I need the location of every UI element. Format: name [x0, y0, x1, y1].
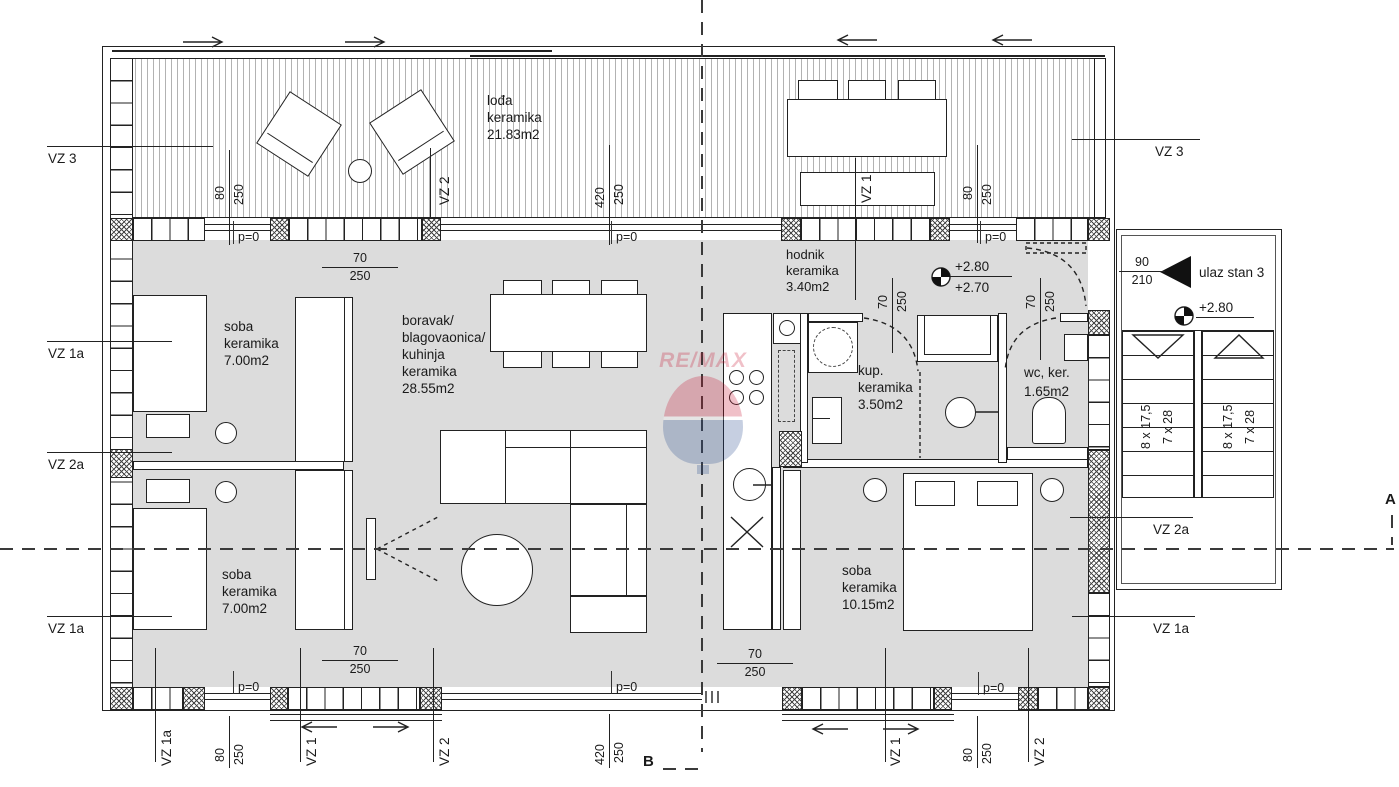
leader-line	[1070, 517, 1193, 518]
level-value-upper: +2.80	[955, 258, 989, 275]
leader-line	[47, 341, 172, 342]
vz-label: VZ 1	[858, 174, 875, 203]
vz-label: VZ 1a	[48, 345, 84, 362]
vz-label: VZ 2	[1031, 737, 1048, 766]
dim-height: 250	[322, 662, 398, 677]
dim-width: 80	[213, 186, 228, 200]
level-value-lower: +2.70	[955, 279, 989, 296]
arrow-left-icon	[993, 35, 1032, 45]
level-line	[950, 276, 1012, 277]
dim-height: 250	[612, 742, 627, 763]
dim-height: 250	[322, 269, 398, 284]
section-label-a: A	[1385, 491, 1396, 508]
dim-height: 250	[895, 291, 910, 312]
floor-level-text: p=0	[983, 682, 1004, 695]
arrow-left-icon	[302, 722, 337, 732]
room-area: 3.40m2	[786, 279, 839, 295]
door-dimension: 70 250	[322, 644, 398, 677]
vz-label: VZ 2	[436, 737, 453, 766]
floor-level-text: p=0	[616, 681, 637, 694]
floor-plan: 8 x 17,5 7 x 28 8 x 17,5 7 x 28	[0, 0, 1399, 787]
room-label-wc: wc, ker. 1.65m2	[1024, 363, 1070, 401]
level-value-stair: +2.80	[1199, 299, 1233, 316]
room-name: wc, ker.	[1024, 363, 1070, 382]
dim-width: 80	[961, 748, 976, 762]
section-line-a-corner	[1391, 515, 1393, 545]
room-name: boravak/	[402, 312, 485, 329]
fraction-bar	[322, 660, 398, 661]
vz-label: VZ 2	[436, 176, 453, 205]
remax-balloon-icon	[663, 376, 743, 464]
leader-line	[855, 158, 856, 300]
section-line-a	[0, 548, 1394, 550]
leader-line	[1028, 648, 1029, 762]
dim-height: 210	[1119, 273, 1165, 288]
room-area: 1.65m2	[1024, 382, 1070, 401]
room-material: keramika	[222, 583, 277, 600]
vz-label: VZ 1a	[158, 730, 175, 766]
glazing-ticks	[706, 691, 718, 703]
arrow-right-icon	[373, 722, 408, 732]
leader-line	[47, 616, 172, 617]
arrow-right-icon	[345, 37, 384, 47]
leader-line	[1072, 616, 1195, 617]
floor-level-text: p=0	[238, 681, 259, 694]
vz-label: VZ 1	[887, 737, 904, 766]
dim-height: 250	[232, 184, 247, 205]
room-material: keramika	[858, 379, 913, 396]
vz-label: VZ 1	[303, 737, 320, 766]
room-material: keramika	[224, 335, 279, 352]
floor-level-text: p=0	[616, 231, 637, 244]
leader-line	[47, 146, 213, 147]
floor-level-label: p=0	[233, 221, 259, 244]
room-name: soba	[222, 566, 277, 583]
dim-width: 70	[322, 251, 398, 266]
room-name: blagovaonica/	[402, 329, 485, 346]
arrow-left-icon	[838, 35, 877, 45]
vz-label: VZ 2a	[48, 456, 84, 473]
room-name: kuhinja	[402, 346, 485, 363]
leader-line	[300, 648, 301, 762]
dim-height: 250	[980, 743, 995, 764]
vz-label: VZ 2a	[1153, 521, 1189, 538]
room-material: keramika	[487, 109, 542, 126]
fraction-bar	[1040, 278, 1041, 360]
dim-width: 420	[593, 744, 608, 765]
dim-height: 250	[980, 184, 995, 205]
door-dimension: 70 250	[717, 647, 793, 680]
room-label-hodnik: hodnik keramika 3.40m2	[786, 247, 839, 295]
leader-line	[433, 648, 434, 762]
level-benchmark-icon	[932, 268, 950, 286]
room-label-room3: soba keramika 10.15m2	[842, 562, 897, 613]
entrance-label: ulaz stan 3	[1199, 264, 1264, 281]
dim-width: 70	[322, 644, 398, 659]
vz-label: VZ 3	[48, 150, 77, 167]
remax-balloon-basket	[697, 465, 709, 474]
room-label-living: boravak/ blagovaonica/ kuhinja keramika …	[402, 312, 485, 397]
room-area: 7.00m2	[222, 600, 277, 617]
fraction-bar	[229, 716, 230, 768]
floor-level-label: p=0	[611, 221, 637, 244]
dim-width: 90	[1119, 255, 1165, 270]
fraction-bar	[609, 714, 610, 768]
room-label-room1: soba keramika 7.00m2	[224, 318, 279, 369]
room-label-loggia: lođa keramika 21.83m2	[487, 92, 542, 143]
room-area: 10.15m2	[842, 596, 897, 613]
door-dimension: 70 250	[322, 251, 398, 284]
room-name: hodnik	[786, 247, 839, 263]
leader-line	[155, 648, 156, 762]
fraction-bar	[892, 278, 893, 353]
room-name: kup.	[858, 362, 913, 379]
fraction-bar	[322, 267, 398, 268]
floor-level-label: p=0	[233, 671, 259, 694]
level-line	[1196, 317, 1254, 318]
room-area: 28.55m2	[402, 380, 485, 397]
arrow-right-icon	[183, 37, 222, 47]
leader-line	[430, 148, 431, 218]
dim-height: 250	[612, 184, 627, 205]
vz-label: VZ 1a	[1153, 620, 1189, 637]
floor-level-label: p=0	[611, 671, 637, 694]
room-area: 3.50m2	[858, 396, 913, 413]
room-name: soba	[842, 562, 897, 579]
section-line-b-corner	[663, 768, 701, 770]
stair-direction-up-icon	[1215, 335, 1263, 358]
floor-level-text: p=0	[985, 231, 1006, 244]
level-benchmark-icon	[1175, 307, 1193, 325]
room-area: 21.83m2	[487, 126, 542, 143]
section-label-b: B	[643, 753, 654, 770]
room-area: 7.00m2	[224, 352, 279, 369]
floor-level-text: p=0	[238, 231, 259, 244]
remax-brand-text: RE/MAX	[638, 349, 768, 373]
dim-width: 70	[876, 295, 891, 309]
vz-label: VZ 1a	[48, 620, 84, 637]
fraction-bar	[977, 716, 978, 768]
dim-width: 70	[717, 647, 793, 662]
room-material: keramika	[786, 263, 839, 279]
entry-door-dimension: 90 210	[1119, 255, 1165, 288]
room-label-bathroom: kup. keramika 3.50m2	[858, 362, 913, 413]
arrow-left-icon	[813, 724, 848, 734]
room-name: lođa	[487, 92, 542, 109]
arrow-right-icon	[883, 724, 918, 734]
vz-label: VZ 3	[1155, 143, 1184, 160]
entry-door-leaf	[1026, 243, 1086, 253]
dim-height: 250	[717, 665, 793, 680]
room-material: keramika	[402, 363, 485, 380]
dim-width: 70	[1024, 295, 1039, 309]
floor-level-label: p=0	[978, 672, 1004, 695]
floor-level-label: p=0	[980, 221, 1006, 244]
fraction-bar	[1119, 271, 1165, 272]
dim-width: 420	[593, 187, 608, 208]
dim-width: 80	[213, 748, 228, 762]
leader-line	[1072, 139, 1200, 140]
remax-watermark: RE/MAX	[638, 349, 768, 464]
dim-width: 80	[961, 186, 976, 200]
fraction-bar	[977, 145, 978, 243]
room-name: soba	[224, 318, 279, 335]
room-material: keramika	[842, 579, 897, 596]
fraction-bar	[229, 150, 230, 245]
dim-height: 250	[1043, 291, 1058, 312]
fraction-bar	[717, 663, 793, 664]
appliance-x-icon	[731, 517, 763, 547]
stair-direction-down-icon	[1133, 335, 1183, 358]
leader-line	[47, 452, 172, 453]
room-label-room2: soba keramika 7.00m2	[222, 566, 277, 617]
dim-height: 250	[232, 744, 247, 765]
